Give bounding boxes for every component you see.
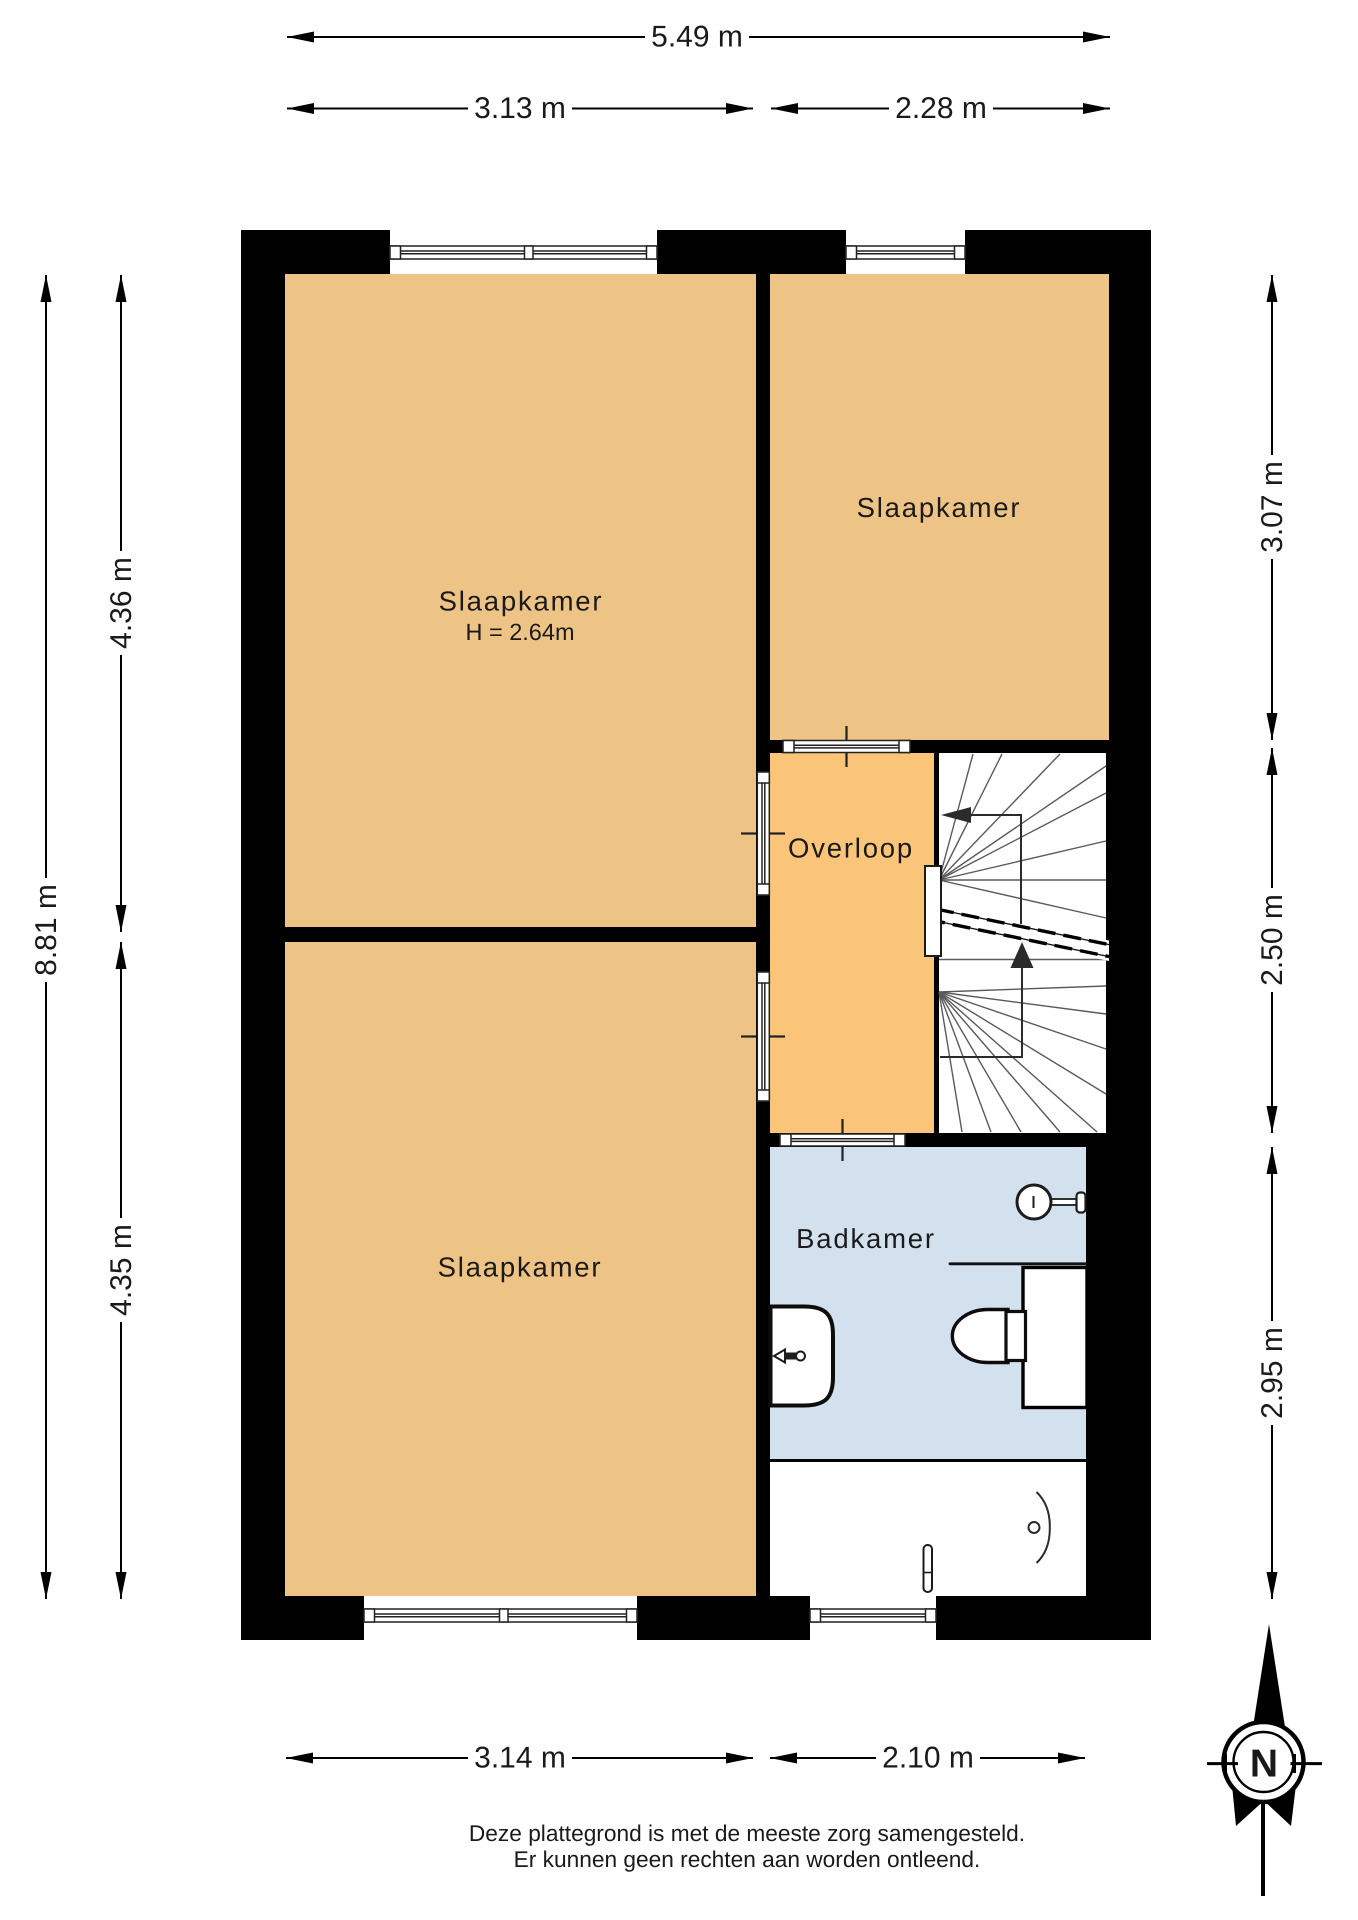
- svg-text:4.36 m: 4.36 m: [105, 557, 138, 649]
- svg-text:2.28 m: 2.28 m: [895, 92, 987, 125]
- svg-text:Deze plattegrond is met de mee: Deze plattegrond is met de meeste zorg s…: [469, 1820, 1025, 1846]
- svg-text:5.49 m: 5.49 m: [651, 21, 743, 54]
- svg-text:Slaapkamer: Slaapkamer: [857, 492, 1022, 523]
- svg-text:Er kunnen geen rechten aan wor: Er kunnen geen rechten aan worden ontlee…: [514, 1846, 981, 1872]
- svg-text:3.14 m: 3.14 m: [474, 1742, 566, 1775]
- svg-text:Slaapkamer: Slaapkamer: [439, 586, 604, 617]
- svg-text:3.13 m: 3.13 m: [474, 92, 566, 125]
- svg-text:Slaapkamer: Slaapkamer: [438, 1252, 603, 1283]
- svg-text:Overloop: Overloop: [788, 833, 914, 864]
- svg-text:4.35 m: 4.35 m: [105, 1224, 138, 1316]
- svg-text:2.50 m: 2.50 m: [1256, 894, 1289, 986]
- svg-text:8.81 m: 8.81 m: [30, 884, 63, 976]
- svg-text:2.10 m: 2.10 m: [882, 1742, 974, 1775]
- svg-text:N: N: [1250, 1743, 1278, 1786]
- svg-text:2.95 m: 2.95 m: [1256, 1327, 1289, 1419]
- svg-text:H = 2.64m: H = 2.64m: [465, 619, 574, 645]
- svg-text:3.07 m: 3.07 m: [1256, 461, 1289, 553]
- svg-text:Badkamer: Badkamer: [796, 1223, 936, 1254]
